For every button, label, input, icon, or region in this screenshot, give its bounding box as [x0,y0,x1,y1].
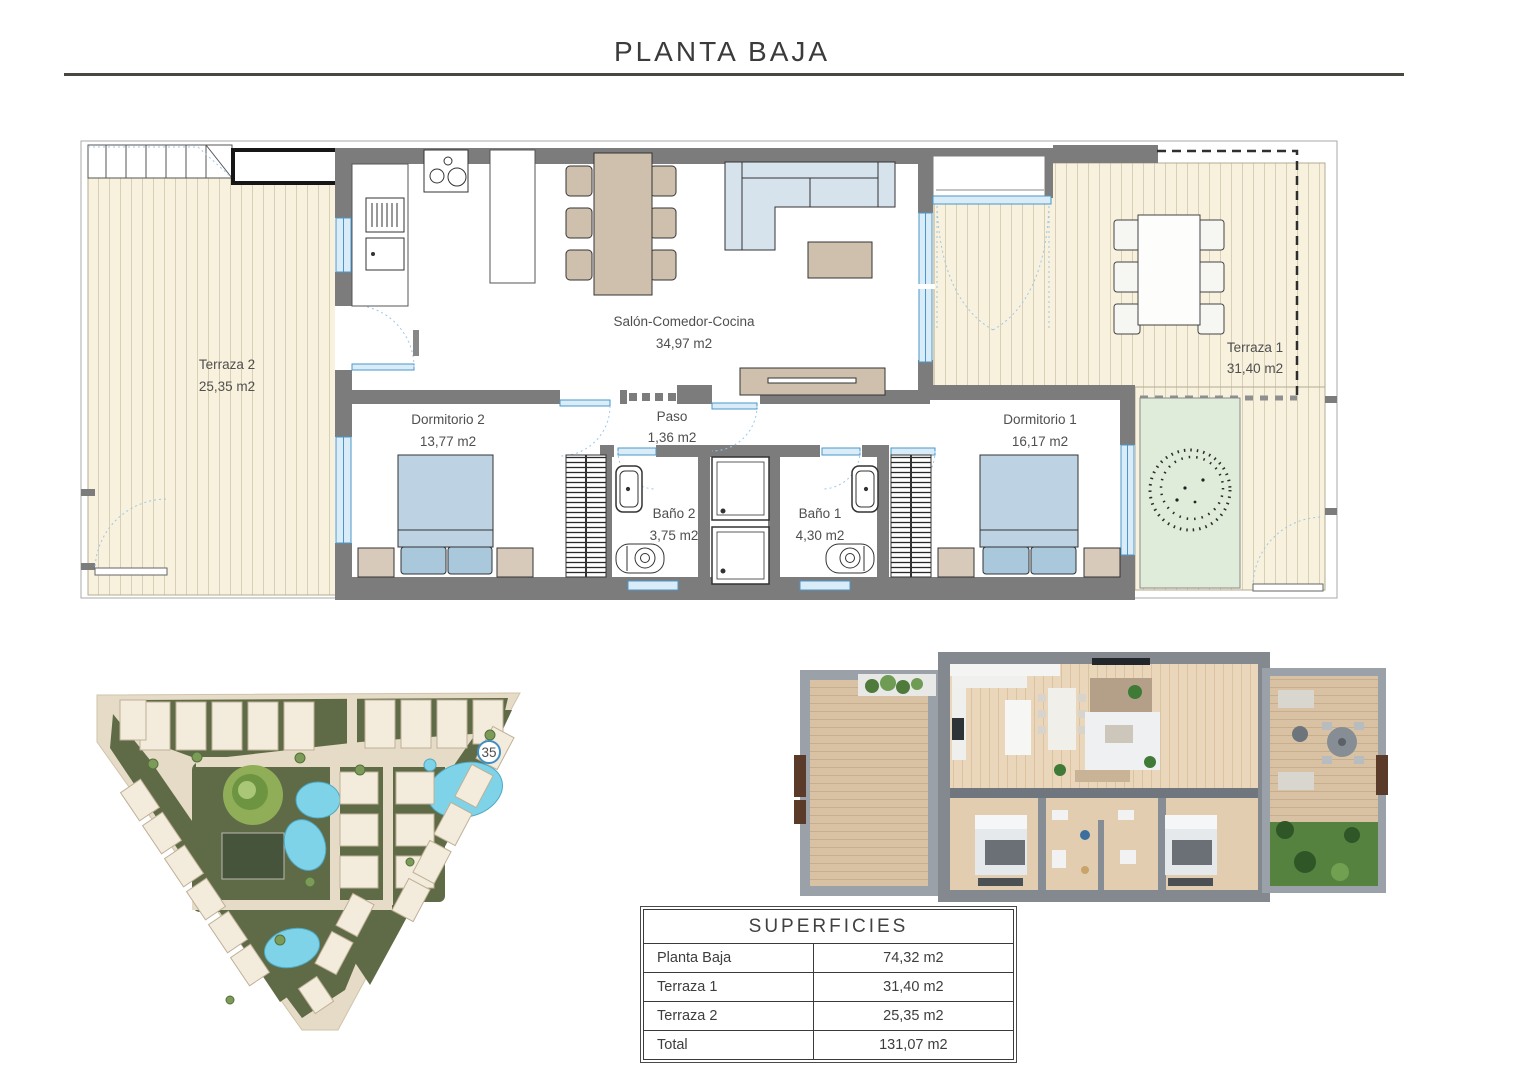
site-plan-image: 35 [88,672,540,1044]
room-area-terraza1: 31,40 m2 [1227,361,1283,376]
bano2-window [628,581,678,590]
render-right-terrace [1262,668,1388,893]
room-label-bano1: Baño 1 [799,506,842,521]
bano1-window [800,581,850,590]
room-label-bano2: Baño 2 [653,506,696,521]
surfaces-table-body: Planta Baja 74,32 m2 Terraza 1 31,40 m2 … [643,943,1014,1060]
room-area-paso: 1,36 m2 [648,430,697,445]
table-row: Terraza 1 31,40 m2 [644,972,1013,1001]
unit-marker: 35 [478,741,500,763]
room-area-terraza2: 25,35 m2 [199,379,255,394]
bano2-door-leaf [618,448,656,455]
paso-door-leaf [712,403,757,409]
table-row-label: Planta Baja [644,944,814,972]
storage-room [933,156,1045,197]
table-row-label: Total [644,1031,814,1059]
page-title: PLANTA BAJA [0,36,1444,68]
terraza1-gate-leaf [1253,584,1323,591]
render-3d-image [782,645,1392,905]
surfaces-table: SUPERFICIES Planta Baja 74,32 m2 Terraza… [640,906,1017,1063]
room-label-terraza2: Terraza 2 [199,357,255,372]
table-row: Total 131,07 m2 [644,1030,1013,1059]
table-row: Planta Baja 74,32 m2 [644,944,1013,972]
entry-door-leaf [352,364,414,370]
garden [1140,398,1240,588]
terraza1-folding-door [933,196,1051,204]
table-row-value: 31,40 m2 [814,973,1013,1001]
kitchen-island [490,150,535,283]
outdoor-dining-table [1114,215,1224,334]
unit-marker-number: 35 [481,745,496,760]
staircase [88,145,232,178]
table-row-label: Terraza 1 [644,973,814,1001]
tv-unit [740,368,885,395]
room-area-salon: 34,97 m2 [656,336,712,351]
render-main-unit [938,652,1270,902]
brochure-page: PLANTA BAJA [0,0,1526,1080]
room-label-paso: Paso [657,409,688,424]
room-area-bano2: 3,75 m2 [650,528,699,543]
room-label-salon: Salón-Comedor-Cocina [613,314,755,329]
room-label-dormitorio1: Dormitorio 1 [1003,412,1077,427]
table-row: Terraza 2 25,35 m2 [644,1001,1013,1030]
coffee-table [808,242,872,278]
render-left-terrace [794,670,938,896]
table-row-value: 131,07 m2 [814,1031,1013,1059]
surfaces-table-title: SUPERFICIES [643,909,1014,944]
terraza2-gate-leaf [95,568,167,575]
title-divider [64,73,1404,76]
room-area-bano1: 4,30 m2 [796,528,845,543]
floor-plan-drawing: Terraza 2 25,35 m2 Salón-Comedor-Cocina … [78,138,1348,608]
bano1-door-leaf [822,448,860,455]
table-row-value: 74,32 m2 [814,944,1013,972]
dormitorio1-door-leaf [891,448,935,455]
dining-table [566,153,676,295]
planter [233,150,347,183]
table-row-label: Terraza 2 [644,1002,814,1030]
room-area-dormitorio1: 16,17 m2 [1012,434,1068,449]
room-area-dormitorio2: 13,77 m2 [420,434,476,449]
table-row-value: 25,35 m2 [814,1002,1013,1030]
room-label-terraza1: Terraza 1 [1227,340,1283,355]
sliding-door-break [916,284,935,289]
room-label-dormitorio2: Dormitorio 2 [411,412,485,427]
dormitorio2-door-leaf [560,400,610,406]
